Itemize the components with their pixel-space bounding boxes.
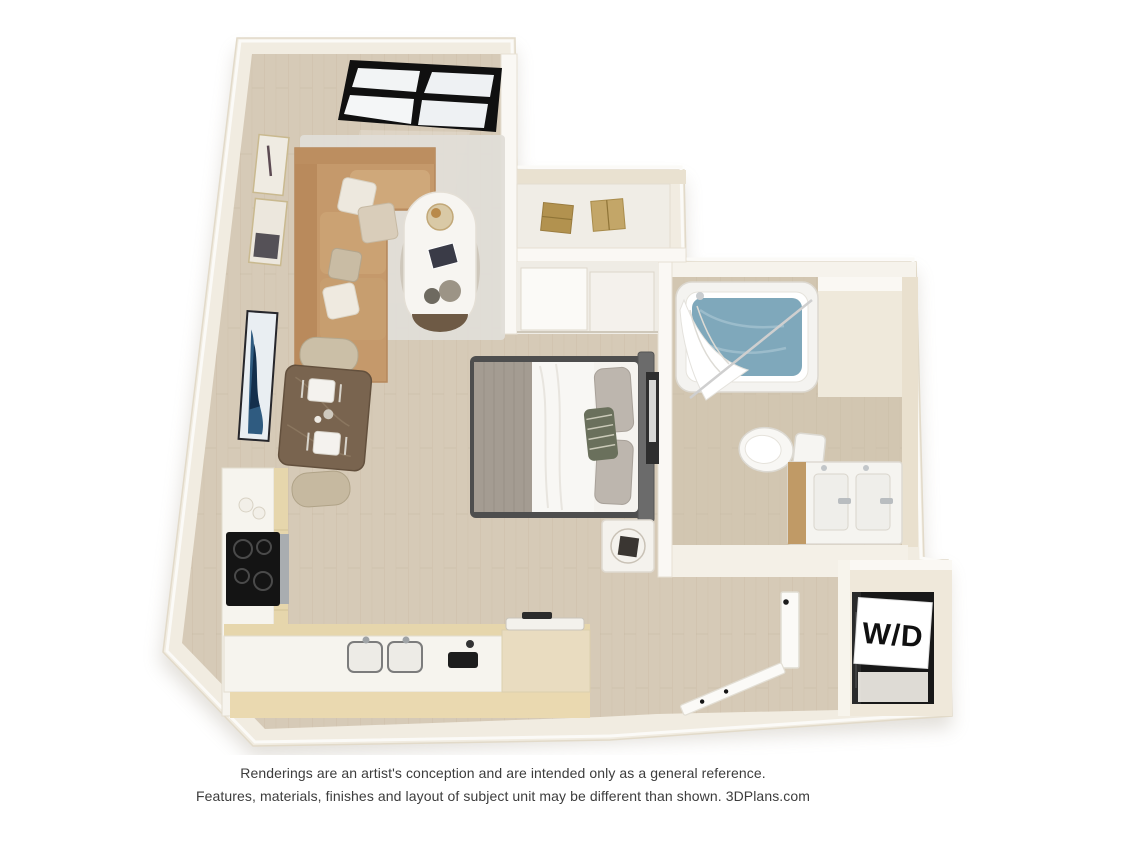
bedroom-bath-wall — [658, 262, 672, 577]
canister-1 — [239, 498, 253, 512]
framed-art-small-2 — [249, 199, 288, 266]
sofa-pillow-2 — [357, 202, 398, 243]
kitchen-peninsula-wood-top — [502, 630, 590, 692]
vanity — [788, 462, 902, 544]
disclaimer-line-1: Renderings are an artist's conception an… — [20, 762, 986, 785]
washer-dryer-label: W/D — [861, 617, 924, 654]
floorplan-rendering: W/D — [0, 0, 1125, 755]
kitchen-cabinet-outer-band — [230, 692, 590, 718]
tub-alcove-wall-top — [818, 277, 902, 291]
nook-closet-divider-wall — [517, 248, 686, 262]
peninsula-tray — [506, 618, 584, 630]
nook-wall-face — [517, 170, 686, 184]
vanity-faucet-2 — [880, 498, 893, 504]
vanity-wood-side — [788, 462, 806, 544]
nightstand — [602, 520, 654, 572]
small-appliance — [448, 652, 478, 668]
tub-faucet — [696, 292, 704, 300]
closet-door-left — [521, 268, 587, 330]
washer-dryer-sign: W/D — [854, 598, 932, 669]
closet-door-right — [590, 272, 654, 332]
duvet — [532, 362, 594, 512]
storage-box-2 — [591, 199, 625, 232]
door-handle — [783, 599, 789, 605]
dining-table — [278, 364, 372, 471]
disclaimer-line-2: Features, materials, finishes and layout… — [20, 785, 986, 808]
dining-chair-bottom — [291, 470, 351, 508]
bathtub — [676, 282, 818, 400]
faucet-1 — [363, 637, 370, 644]
floorplan-svg: W/D — [0, 0, 1125, 755]
storage-nook — [517, 184, 670, 248]
floorplan-page: { "page": { "width": 1125, "height": 844… — [0, 0, 1125, 844]
disclaimer: Renderings are an artist's conception an… — [20, 762, 986, 808]
sofa-pillow-3 — [328, 248, 363, 283]
bathroom-door-open — [781, 592, 799, 668]
faucet-2 — [403, 637, 410, 644]
decor-tray — [427, 204, 453, 230]
living-window — [338, 60, 502, 132]
tub-alcove-wall-mass — [818, 277, 902, 397]
storage-box-1 — [541, 203, 574, 234]
decor-vase-2 — [424, 288, 440, 304]
vanity-faucet-1 — [838, 498, 851, 504]
canister-2 — [253, 507, 265, 519]
framed-art-small-1 — [253, 135, 289, 196]
bath-right-wall-face — [902, 277, 918, 547]
leaning-frame — [646, 372, 659, 464]
cooktop — [226, 532, 289, 606]
bath-top-wall — [672, 262, 916, 277]
laundry-closet: W/D — [838, 560, 952, 716]
decor-vase-1 — [439, 280, 461, 302]
sliding-door-closet — [517, 262, 658, 334]
knit-blanket — [474, 362, 532, 512]
accent-pillow — [583, 407, 618, 462]
bed — [470, 352, 654, 522]
sofa-pillow-4 — [322, 282, 360, 320]
coffee-table — [400, 192, 480, 332]
